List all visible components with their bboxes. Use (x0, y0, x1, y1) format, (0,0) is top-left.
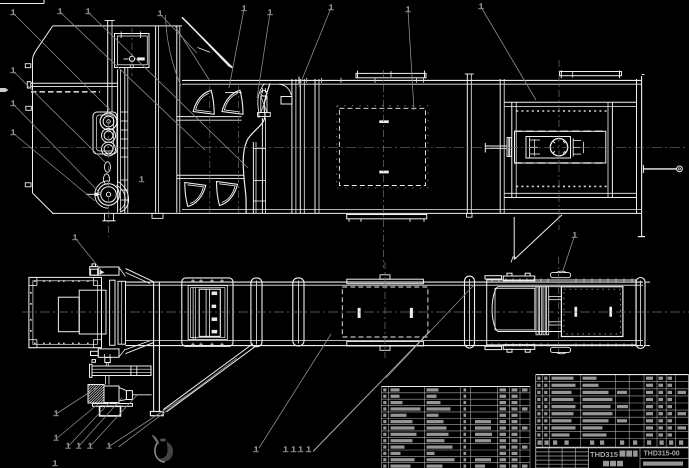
svg-text:THD315: THD315 (590, 450, 618, 459)
svg-text:THD315-00: THD315-00 (644, 451, 680, 458)
